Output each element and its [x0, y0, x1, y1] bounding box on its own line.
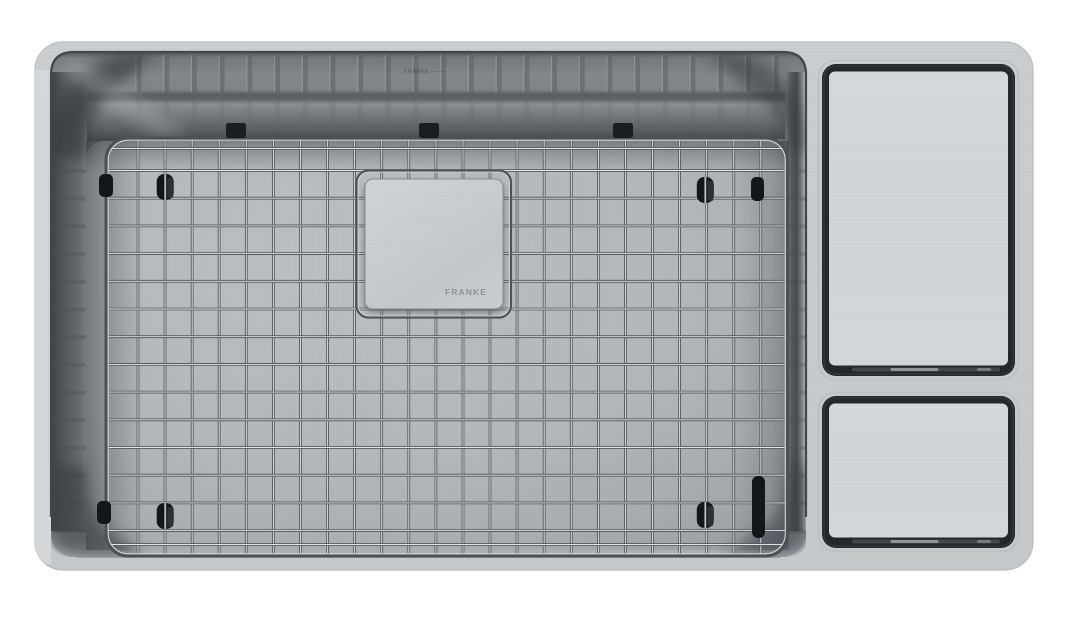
- svg-text:FRANKE —·—: FRANKE —·—: [404, 69, 446, 75]
- svg-text:FRANKE: FRANKE: [445, 287, 487, 297]
